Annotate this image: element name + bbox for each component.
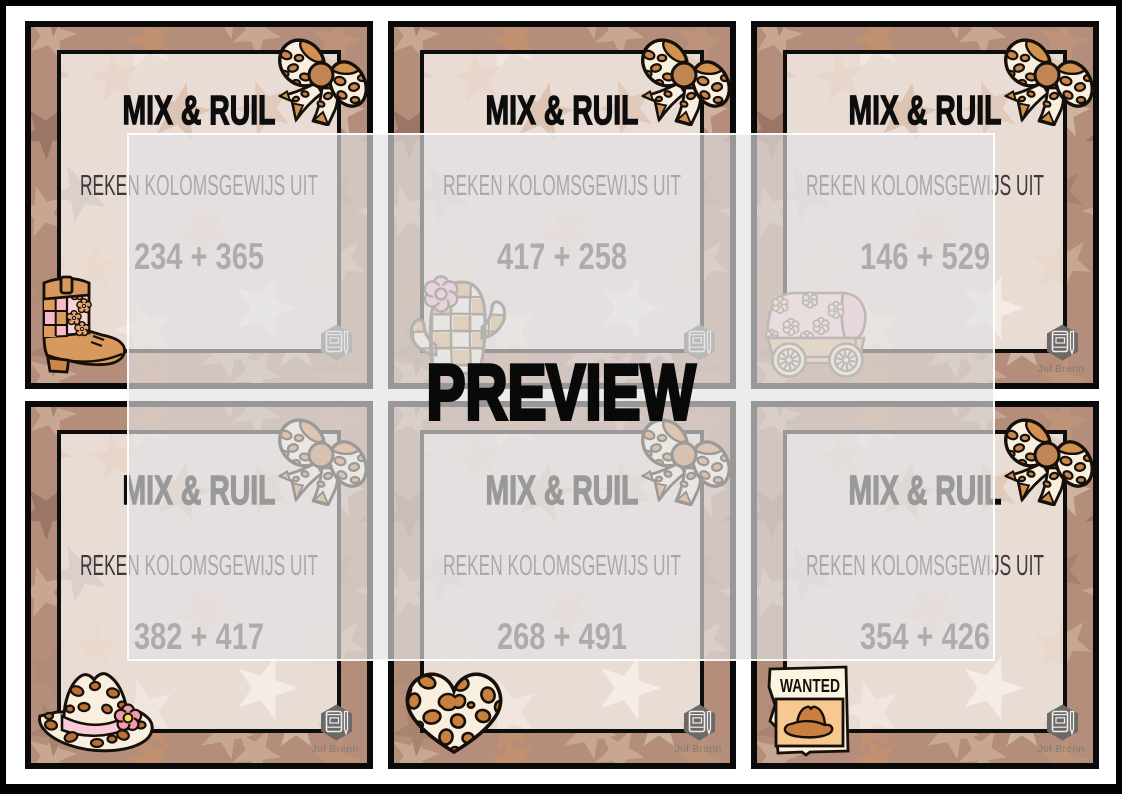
svg-text:WANTED: WANTED <box>780 676 840 696</box>
svg-text:MIX & RUIL: MIX & RUIL <box>486 91 639 133</box>
svg-text:MIX & RUIL: MIX & RUIL <box>123 91 276 133</box>
svg-text:MIX & RUIL: MIX & RUIL <box>849 91 1002 133</box>
